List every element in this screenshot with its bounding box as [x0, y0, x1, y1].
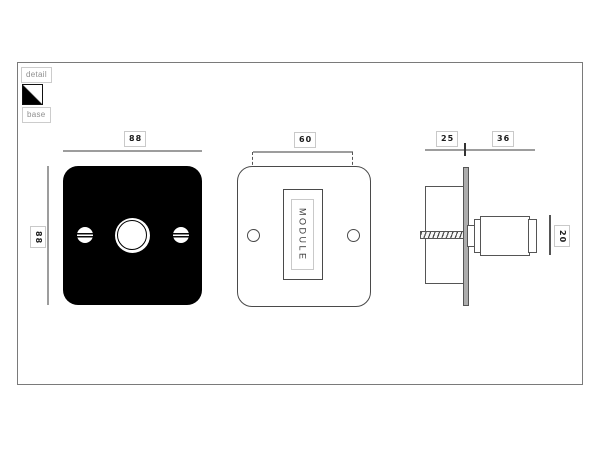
screw-right-icon	[173, 227, 189, 243]
screw-left-icon	[77, 227, 93, 243]
dimension-drawing: detail base 88 88 60 MODULE 25 36 20	[0, 0, 600, 450]
depth-dimension-line	[425, 149, 535, 151]
module-spacing-dimension-line	[253, 151, 353, 153]
detail-base-swatch-icon	[22, 84, 43, 105]
knob-height-dimension-line	[549, 215, 551, 255]
knob-body-side	[480, 216, 530, 256]
depth-dimension-tick	[464, 143, 466, 156]
base-finish-label: base	[22, 107, 51, 123]
screw-hole-left	[247, 229, 260, 242]
base-width-dimension-label: 88	[124, 131, 146, 147]
base-height-dimension-label: 88	[30, 226, 46, 248]
knob-cap-right	[528, 219, 537, 253]
detail-finish-label: detail	[21, 67, 52, 83]
base-width-dimension-line	[63, 150, 202, 152]
base-height-dimension-line	[47, 166, 49, 305]
dimmer-knob-ring	[117, 220, 147, 250]
screw-hole-right	[347, 229, 360, 242]
module-spacing-dimension-label: 60	[294, 132, 316, 148]
threaded-rod	[420, 231, 466, 239]
module-label: MODULE	[291, 199, 314, 270]
knob-height-dimension-label: 20	[554, 225, 570, 247]
back-depth-dimension-label: 25	[436, 131, 458, 147]
front-depth-dimension-label: 36	[492, 131, 514, 147]
